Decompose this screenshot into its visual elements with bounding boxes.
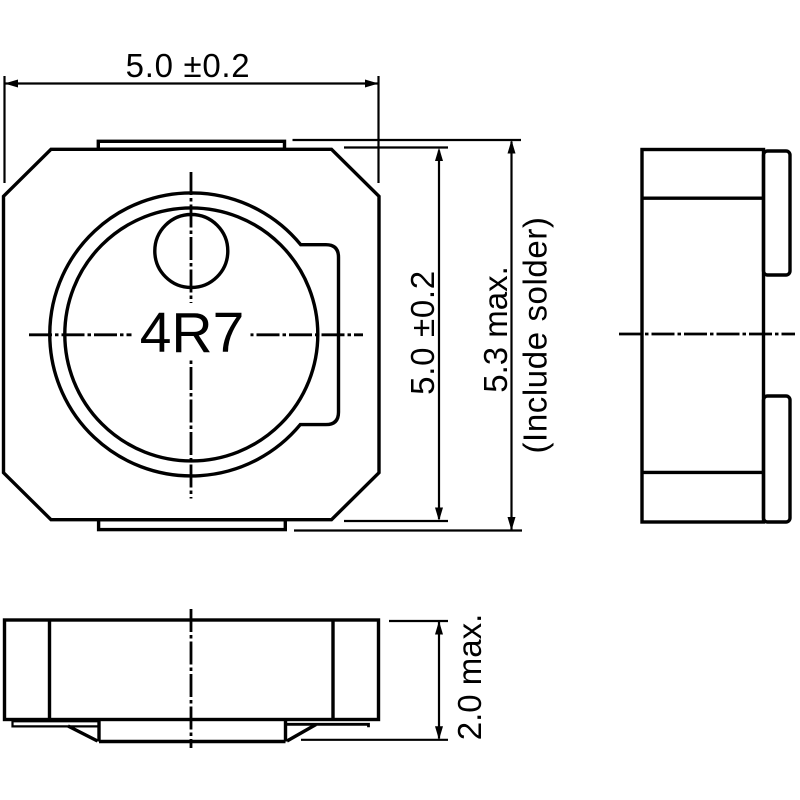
svg-text:5.3 max.: 5.3 max. — [477, 266, 514, 393]
svg-text:5.0 ±0.2: 5.0 ±0.2 — [126, 47, 251, 84]
svg-text:5.0 ±0.2: 5.0 ±0.2 — [404, 270, 441, 395]
svg-text:2.0 max.: 2.0 max. — [451, 614, 488, 741]
svg-text:4R7: 4R7 — [140, 301, 245, 365]
svg-text:(Include solder): (Include solder) — [517, 216, 554, 453]
